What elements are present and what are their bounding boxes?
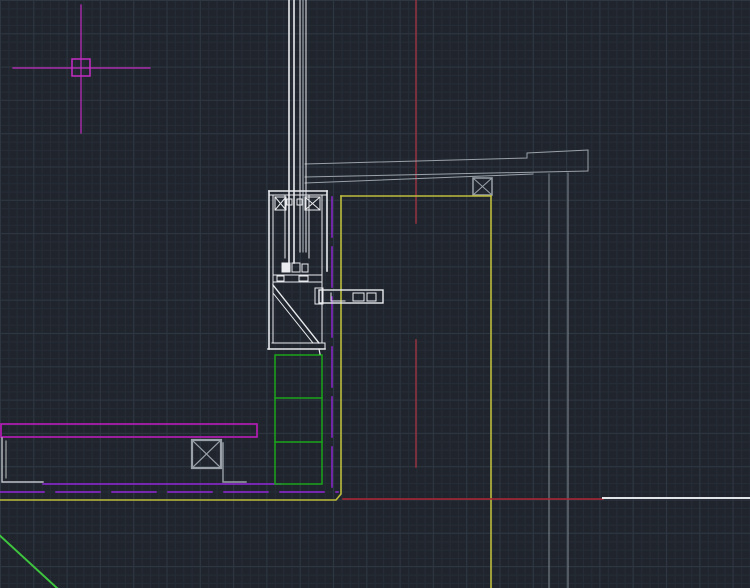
green-slope-line[interactable] (0, 532, 57, 588)
transom-clip-1[interactable] (277, 276, 284, 281)
green-blocking-outline[interactable] (275, 355, 322, 484)
beam-bottom-edge[interactable] (305, 171, 588, 177)
left-angle-outer[interactable] (2, 438, 43, 482)
setting-block-3[interactable] (302, 264, 308, 272)
beam-lower-chord[interactable] (305, 174, 533, 183)
yellow-wall-left[interactable] (0, 196, 341, 500)
bracket-arm-plate-1[interactable] (353, 293, 364, 301)
diagonal-brace-outer[interactable] (273, 285, 319, 343)
setting-block-solid[interactable] (282, 263, 290, 272)
cad-drawing (0, 0, 750, 588)
magenta-slab-outline[interactable] (1, 424, 257, 437)
setting-block-2[interactable] (292, 263, 300, 272)
anchor-box-left-leg[interactable] (223, 443, 246, 482)
bracket-arm-plate-2[interactable] (367, 293, 376, 301)
transom-clip-2[interactable] (299, 276, 308, 281)
cad-viewport[interactable] (0, 0, 750, 588)
beam-top-edge[interactable] (305, 150, 588, 164)
bracket-arm-lmark[interactable] (331, 293, 345, 301)
diagonal-brace-inner[interactable] (273, 293, 313, 343)
